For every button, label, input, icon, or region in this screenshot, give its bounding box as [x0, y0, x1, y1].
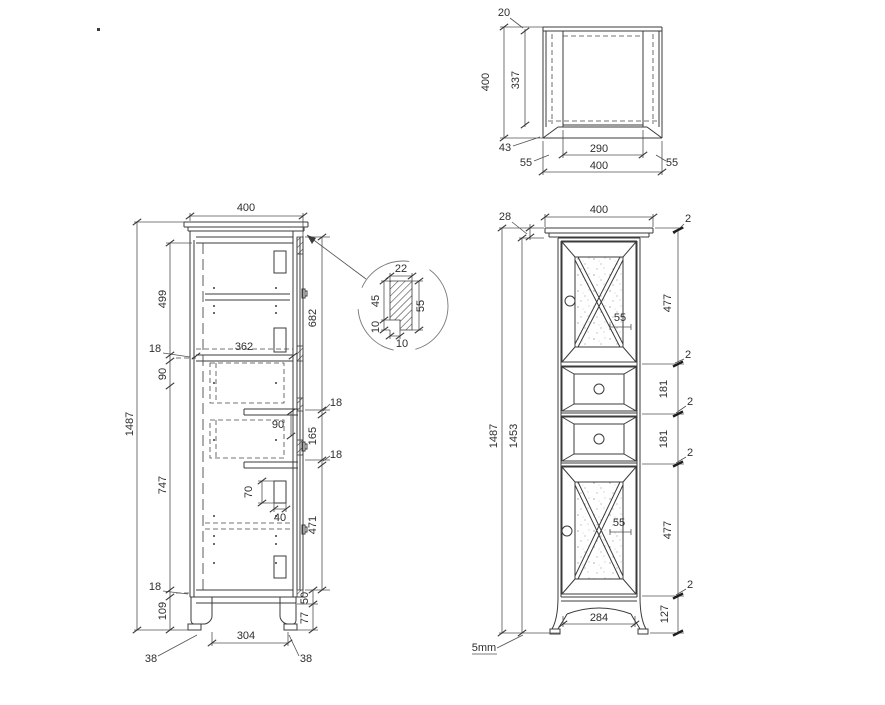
dim-side-leg-height: 77	[299, 612, 311, 624]
dim-side-front-leg-width: 38	[300, 653, 312, 665]
top-door-glass	[575, 257, 623, 347]
dim-front-base-width: 284	[590, 612, 608, 624]
top-view-hidden-lines	[548, 34, 658, 124]
technical-drawing-canvas: 400 1487 499 18 90 747 18 109 362 682 90…	[0, 0, 885, 705]
dim-side-shelf-thickness: 18	[149, 343, 161, 355]
dim-top-depth-total: 400	[480, 73, 492, 91]
dim-side-top-door-height: 682	[307, 309, 319, 327]
dim-front-height-total: 1487	[488, 424, 500, 448]
top-door-knob	[565, 296, 575, 306]
dim-front-gap-top: 2	[685, 213, 691, 225]
dim-side-gap-upper: 18	[330, 397, 342, 409]
front-elevation-view: 28 400 2 477 55 2 1487 1453 181 2 181 2 …	[472, 204, 693, 654]
top-view-dimension-lines	[500, 18, 666, 175]
dim-side-depth-top: 400	[237, 202, 255, 214]
dim-side-hinge-offset: 70	[243, 486, 255, 498]
drawing-page: 400 1487 499 18 90 747 18 109 362 682 90…	[0, 0, 885, 705]
dim-front-width-total: 400	[590, 204, 608, 216]
dim-front-muntin-top: 55	[614, 312, 626, 324]
dim-side-rail-height: 90	[157, 368, 169, 380]
leader-arrowhead-icon	[307, 235, 316, 244]
side-section-view: 400 1487 499 18 90 747 18 109 362 682 90…	[124, 202, 342, 665]
detail-leader-line	[307, 235, 366, 279]
moulding-profile-section	[390, 281, 412, 330]
dim-top-front-rail: 43	[499, 142, 511, 154]
dim-detail-upper-height: 45	[370, 295, 382, 307]
dim-detail-notch-width: 10	[396, 338, 408, 350]
dim-side-hinge-width: 40	[274, 512, 286, 524]
note-floor-clearance: 5mm	[472, 642, 496, 654]
dim-front-base-height: 127	[659, 605, 671, 623]
dim-top-back-thickness: 20	[498, 7, 510, 19]
dim-side-bottom-panel: 18	[149, 581, 161, 593]
dim-side-back-leg-width: 38	[145, 653, 157, 665]
dim-front-drawer-one-height: 181	[658, 380, 670, 398]
dim-side-interior-depth: 362	[235, 341, 253, 353]
dim-front-gap-mid-one: 2	[687, 396, 693, 408]
bottom-door-glass	[575, 482, 623, 579]
dim-side-leg-spacing: 304	[237, 630, 255, 642]
dim-side-bottom-door-height: 471	[307, 516, 319, 534]
dim-front-drawer-two-height: 181	[658, 430, 670, 448]
dim-top-interior-depth: 337	[510, 71, 522, 89]
dim-top-side-left: 55	[520, 157, 532, 169]
dim-detail-profile-width: 22	[395, 263, 407, 275]
dim-front-gap-bottom: 2	[687, 579, 693, 591]
dim-top-width-total: 400	[590, 160, 608, 172]
dim-front-cornice-height: 28	[499, 211, 511, 223]
dim-detail-total-height: 55	[415, 300, 427, 312]
dim-side-lower-interior: 747	[157, 476, 169, 494]
top-plan-view: 20 400 337 43 55 290 400 55	[480, 7, 678, 175]
dim-side-height-total: 1487	[124, 412, 136, 436]
dim-side-upper-interior: 499	[157, 290, 169, 308]
dim-side-apron-height: 50	[299, 592, 311, 604]
dim-top-interior-width: 290	[590, 143, 608, 155]
dim-front-bottom-door-height: 477	[662, 521, 674, 539]
moulding-detail-view: 22 45 55 10 10	[307, 235, 448, 351]
dim-front-muntin-bottom: 55	[613, 517, 625, 529]
dim-side-drawer-overlay: 90	[272, 419, 284, 431]
dim-side-drawer-front-height: 165	[307, 427, 319, 445]
dim-side-gap-lower: 18	[330, 449, 342, 461]
dim-front-gap-upper: 2	[685, 349, 691, 361]
shelf-pin-holes	[213, 287, 277, 564]
dim-front-height-body: 1453	[508, 424, 520, 448]
bottom-door-knob	[562, 526, 572, 536]
drawer-two-knob	[594, 434, 604, 444]
dim-top-side-right: 55	[666, 157, 678, 169]
dim-front-top-door-height: 477	[662, 294, 674, 312]
dim-detail-notch-height: 10	[370, 321, 382, 333]
drawer-one-knob	[594, 384, 604, 394]
dim-front-gap-mid-two: 2	[687, 447, 693, 459]
dim-side-plinth-height: 109	[157, 602, 169, 620]
stray-mark	[97, 28, 100, 31]
